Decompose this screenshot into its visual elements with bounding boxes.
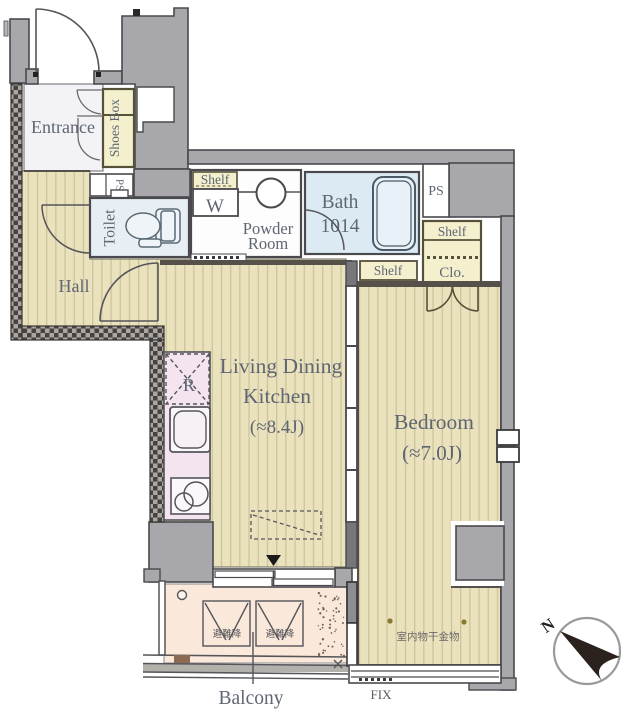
- svg-text:室内物干金物: 室内物干金物: [397, 630, 460, 643]
- svg-text:PS: PS: [113, 179, 125, 191]
- svg-text:Room: Room: [248, 234, 289, 253]
- svg-text:Balcony: Balcony: [219, 688, 284, 709]
- svg-text:Entrance: Entrance: [31, 117, 95, 137]
- svg-text:避難降: 避難降: [213, 628, 242, 640]
- svg-text:W: W: [206, 196, 224, 217]
- svg-text:Shoes Box: Shoes Box: [107, 99, 122, 157]
- svg-text:Shelf: Shelf: [374, 263, 403, 278]
- svg-text:PS: PS: [428, 184, 444, 199]
- svg-text:R: R: [183, 375, 195, 395]
- svg-text:避難降: 避難降: [266, 628, 295, 640]
- svg-text:Bath: Bath: [322, 192, 359, 213]
- svg-text:Clo.: Clo.: [439, 265, 464, 281]
- svg-text:(≈8.4J): (≈8.4J): [250, 417, 304, 438]
- svg-text:Hall: Hall: [59, 276, 90, 296]
- svg-text:Toilet: Toilet: [102, 209, 119, 247]
- svg-text:Shelf: Shelf: [201, 172, 230, 187]
- svg-text:Shelf: Shelf: [438, 224, 467, 239]
- svg-text:Living Dining: Living Dining: [220, 354, 343, 378]
- svg-text:(≈7.0J): (≈7.0J): [402, 441, 462, 465]
- svg-text:Kitchen: Kitchen: [243, 384, 311, 408]
- svg-text:FIX: FIX: [371, 687, 393, 702]
- svg-text:Bedroom: Bedroom: [394, 410, 474, 434]
